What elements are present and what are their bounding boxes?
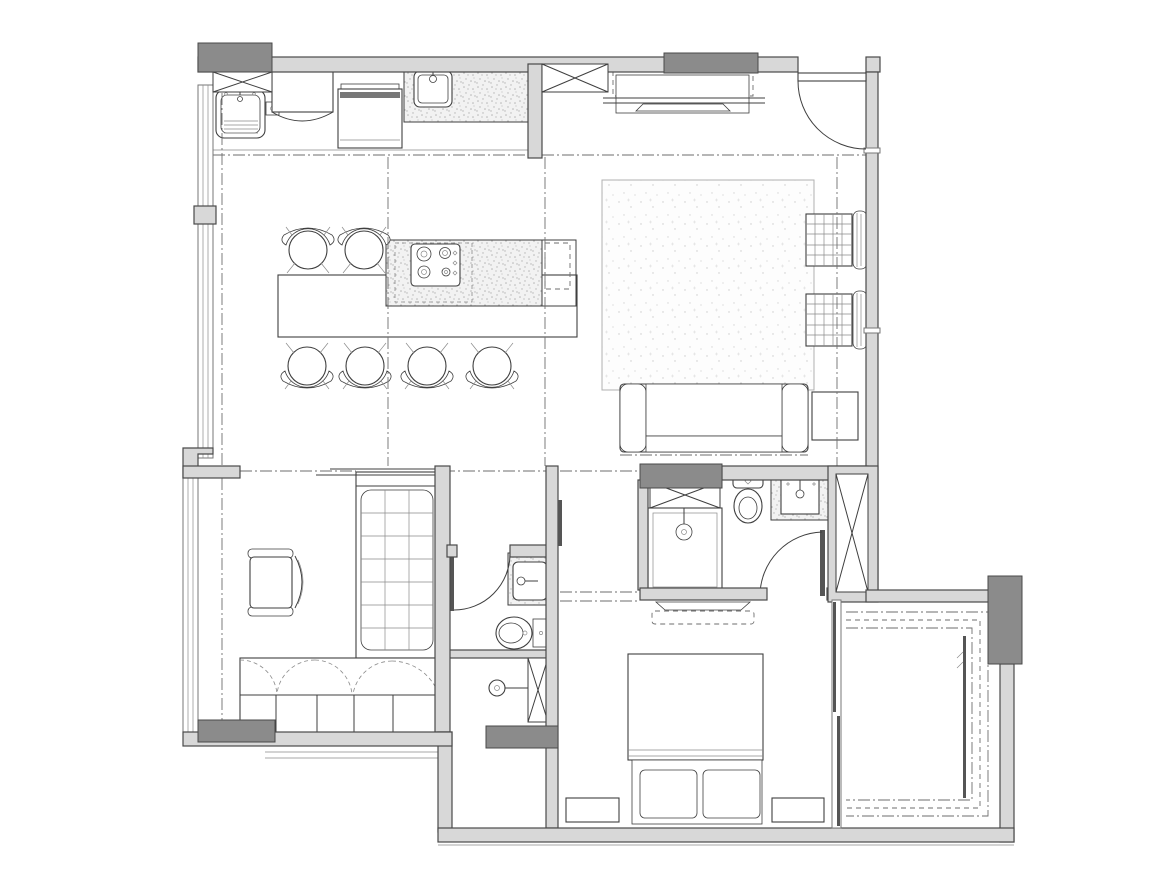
window-mullion <box>194 206 216 224</box>
master-bath-bottom-wall <box>640 588 767 600</box>
tv-screen-icon <box>656 602 750 610</box>
pillow <box>703 770 760 818</box>
desk-chair <box>248 549 303 616</box>
sliding-door-balcony <box>832 600 841 828</box>
duct-shaft-x <box>528 658 548 722</box>
curtain-track-middle <box>846 620 980 808</box>
bathroom-door <box>760 530 825 596</box>
glazing-line <box>963 636 966 798</box>
column-entry-nook <box>486 726 558 748</box>
cooktop-icon <box>411 244 460 286</box>
sofa <box>620 384 808 452</box>
window-sill <box>265 752 450 758</box>
curtain-track-inner <box>846 628 972 800</box>
guest-bathroom <box>447 551 556 722</box>
bathroom-door <box>449 551 510 611</box>
single-bed <box>316 469 443 658</box>
master-bathroom <box>648 474 833 596</box>
study-bedroom <box>240 469 450 758</box>
dining-chair <box>282 227 334 273</box>
dining-chair <box>339 343 391 389</box>
faucet-icon <box>430 76 437 83</box>
curtain-track-outer <box>846 612 988 816</box>
closet-shaft-x <box>828 466 878 602</box>
floor-plan-page <box>0 0 1170 896</box>
dining-chair <box>401 343 453 389</box>
entry-shaft-x <box>542 64 608 92</box>
laundry-shaft-x <box>213 72 272 92</box>
washbasin <box>771 474 833 520</box>
toilet <box>733 475 763 523</box>
dining-chair <box>281 343 333 389</box>
nightstand <box>566 798 619 822</box>
armchair <box>806 291 867 349</box>
floor-plan <box>0 0 1170 896</box>
balcony-right-wall <box>1000 664 1014 842</box>
armchair <box>806 211 867 269</box>
nightstand <box>772 798 824 822</box>
kitchen-dining <box>213 64 577 389</box>
oven <box>338 84 402 148</box>
kitchen-stub-wall <box>528 64 542 158</box>
column-top-middle <box>664 53 758 73</box>
shower <box>648 482 722 592</box>
balcony <box>846 612 988 816</box>
study-right-wall <box>435 466 450 732</box>
door-leaf <box>798 73 866 81</box>
dining-chair <box>466 343 518 389</box>
entry-door <box>798 73 866 149</box>
master-bedroom <box>566 602 824 824</box>
window-wall-left <box>198 85 213 458</box>
living-room <box>602 180 814 390</box>
tv-screen-icon <box>636 104 730 111</box>
column-study <box>198 720 275 742</box>
column-balcony <box>988 576 1022 664</box>
toilet <box>496 617 549 649</box>
double-bed <box>628 654 763 824</box>
tv-cabinet-dashed <box>652 611 754 624</box>
refrigerator <box>272 68 333 121</box>
column-master-bath <box>640 464 722 488</box>
window-wall-study <box>183 478 198 732</box>
door-swing-arc <box>798 81 866 149</box>
side-table <box>812 392 858 440</box>
column-top-left <box>198 43 272 72</box>
kitchen-sink-counter <box>404 64 530 122</box>
bottom-wall <box>438 828 1014 842</box>
corridor-left-wall <box>546 466 558 828</box>
balcony-top-wall <box>866 590 992 602</box>
corridor-ceiling-lines <box>560 592 638 601</box>
door-leaf <box>558 500 562 546</box>
area-rug <box>602 180 814 390</box>
pillow <box>640 770 697 818</box>
dining-chair <box>338 227 390 273</box>
shower-head-icon <box>489 680 528 696</box>
